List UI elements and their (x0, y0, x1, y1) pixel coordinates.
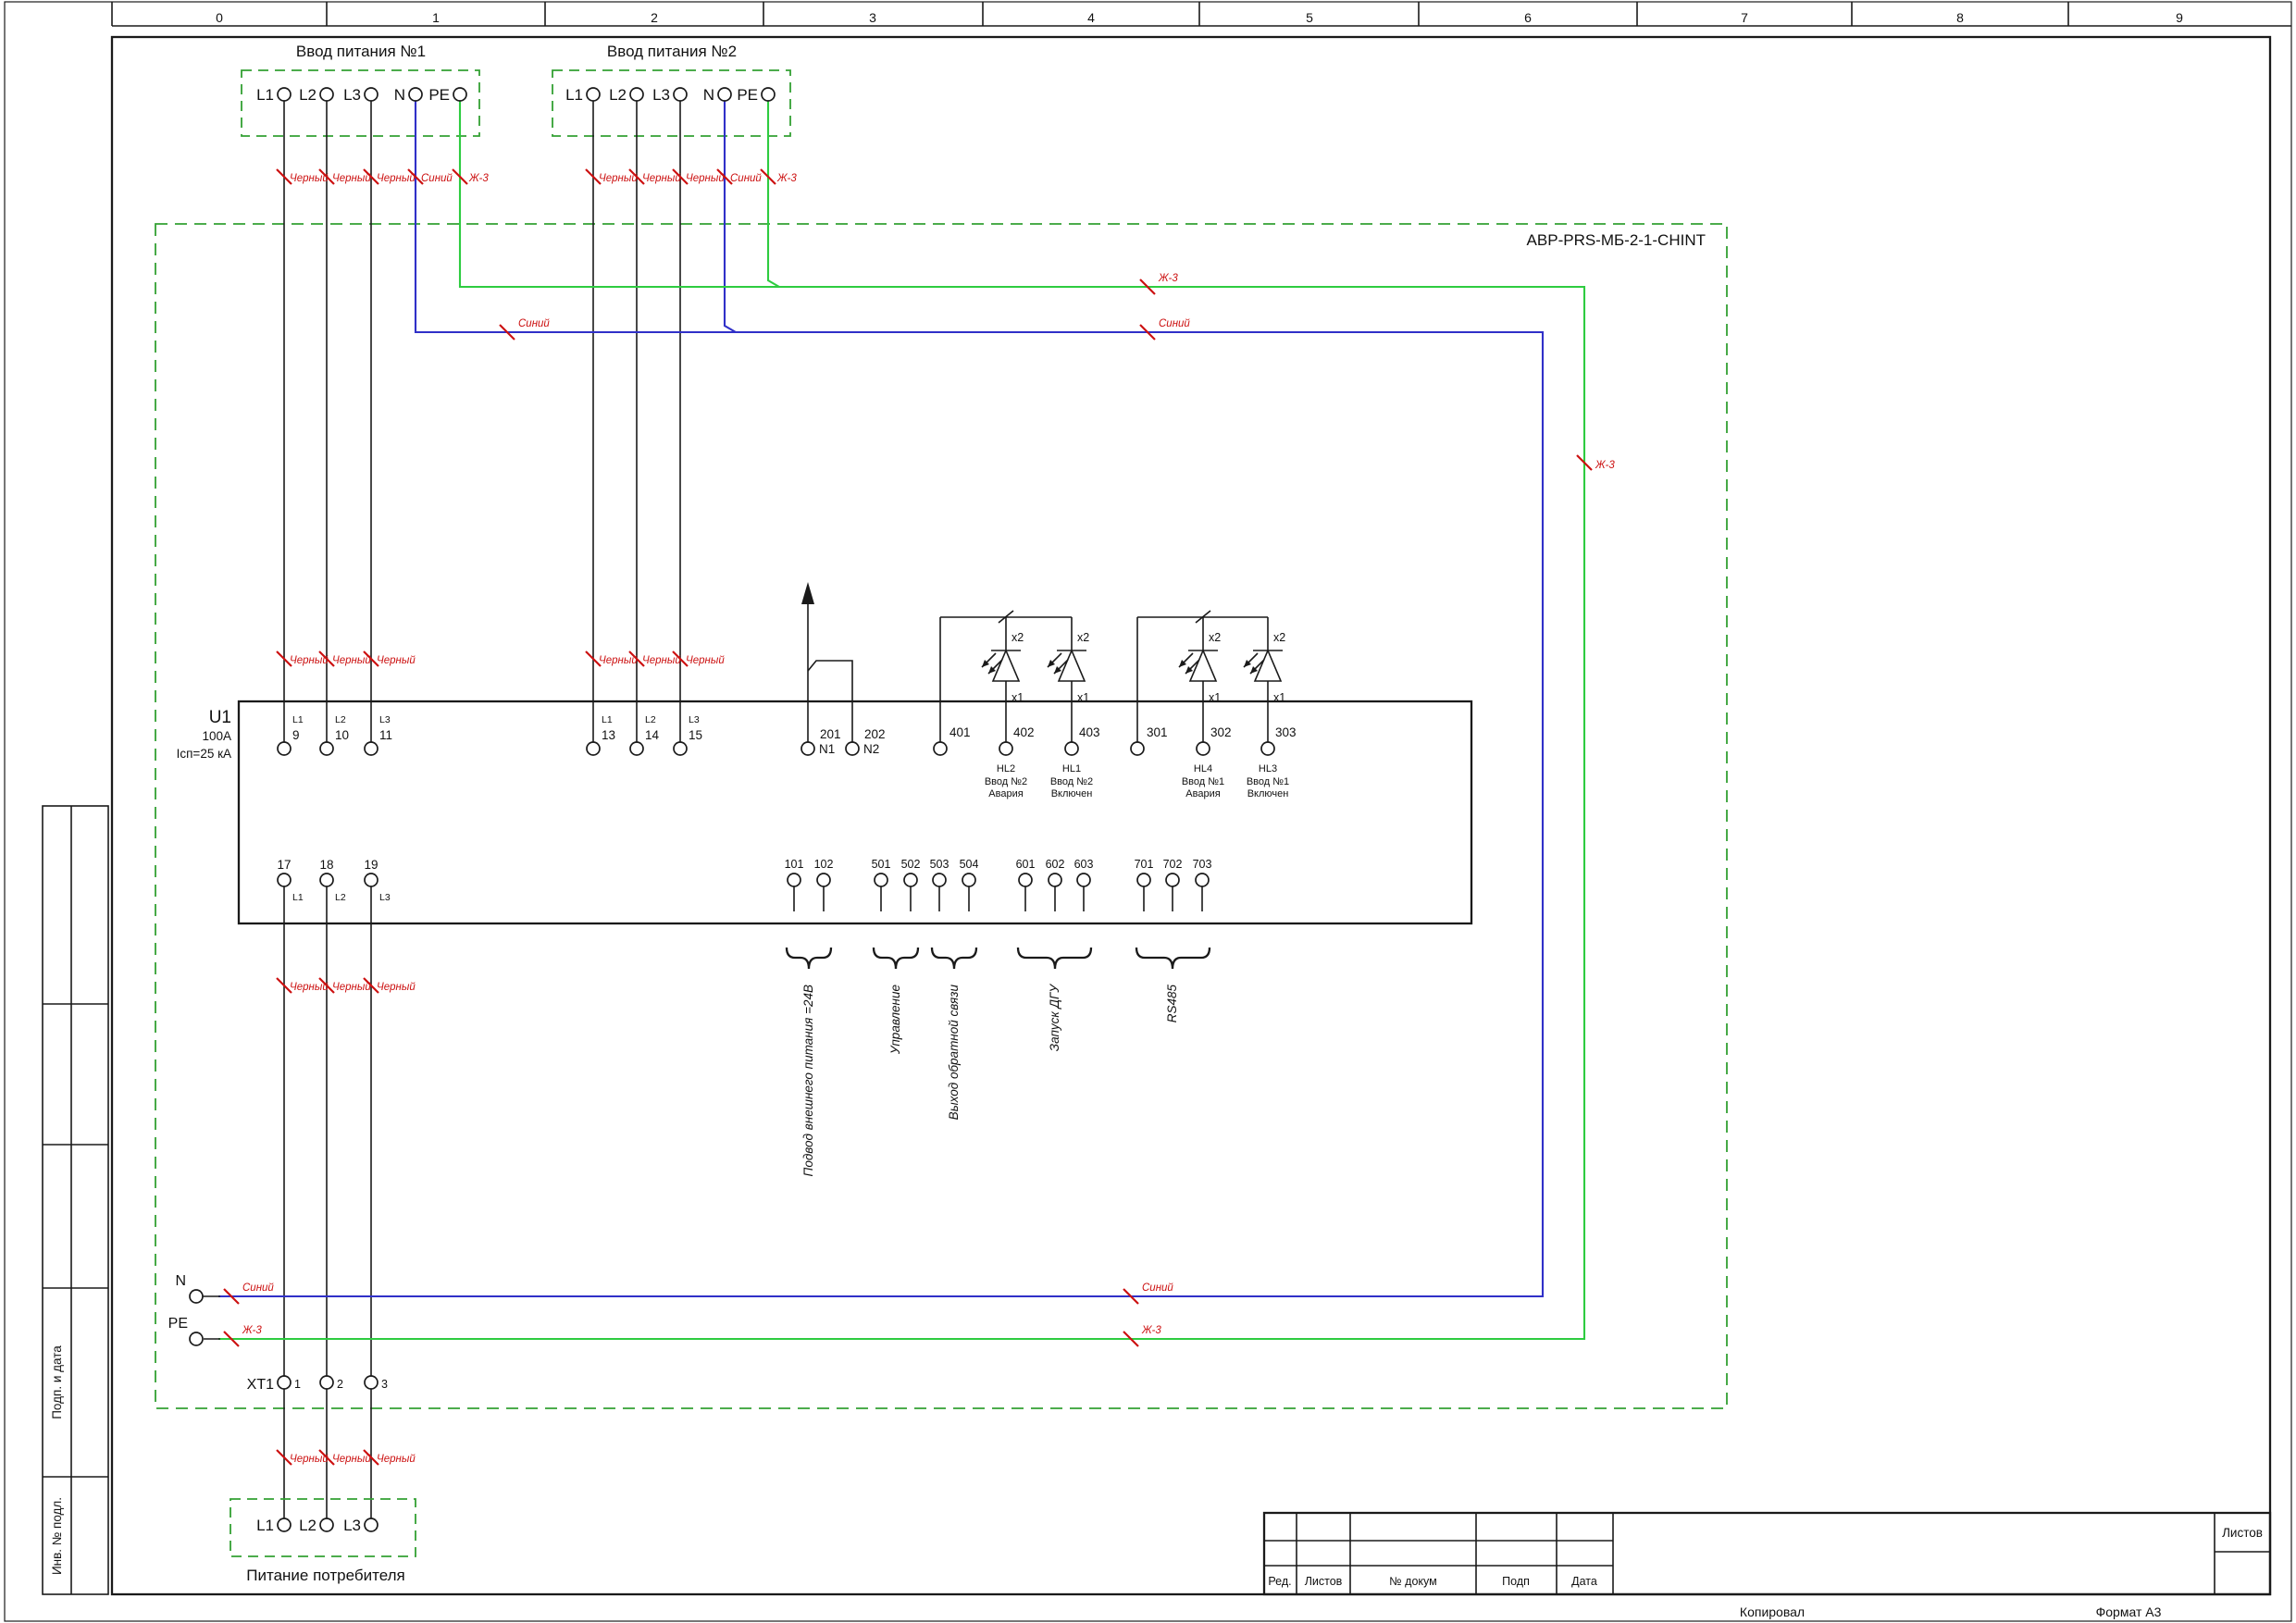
t14-phase: L2 (645, 714, 656, 725)
wire-mark: Черный (290, 173, 329, 184)
ruler-2: 2 (651, 10, 658, 25)
t18-phase: L2 (335, 892, 346, 903)
t303-num: 303 (1275, 725, 1297, 739)
input2-L2-label: L2 (609, 86, 627, 104)
terminal-14 (630, 742, 643, 755)
wire-mark: Черный (377, 173, 416, 184)
hl2-line1: Ввод №2 (985, 776, 1027, 787)
input2-L3-label: L3 (652, 86, 670, 104)
ruler-8: 8 (1956, 10, 1964, 25)
left-stamp-column: Подп. и дата Инв. № подл. (43, 806, 108, 1594)
terminal-consumer-L1 (278, 1518, 291, 1531)
power-input-1: Ввод питания №1 L1 L2 L3 N PE (242, 43, 479, 136)
group-label-rs485: RS485 (1165, 985, 1179, 1023)
terminal-18 (320, 873, 333, 886)
hl3-x1: x1 (1273, 691, 1285, 704)
u1-terminals-input2: L1 13 L2 14 L3 15 (587, 714, 702, 755)
t9-phase: L1 (292, 714, 304, 725)
titleblock-col-docnum: № докум (1389, 1575, 1436, 1588)
terminal-303 (1261, 742, 1274, 755)
hl4-x2: x2 (1209, 631, 1221, 644)
hl2-name: HL2 (997, 763, 1015, 774)
terminal-in2-L1 (587, 88, 600, 101)
wire-mark: Черный (377, 1454, 416, 1465)
u1-output-terminals: 17 18 19 L1 L2 L3 (277, 858, 390, 903)
wire-mark: Черный (642, 173, 681, 184)
schematic-sheet: 0 1 2 3 4 5 6 7 8 9 Подп. и дата Инв. № … (0, 0, 2296, 1623)
wire-mark: Ж-3 (468, 173, 489, 184)
input1-PE-label: PE (428, 86, 450, 104)
terminal-401 (934, 742, 947, 755)
wire-mark: Синий (1142, 1282, 1173, 1294)
neutral-wire (218, 101, 1543, 1296)
terminal-301 (1131, 742, 1144, 755)
t301-num: 301 (1147, 725, 1168, 739)
u1-breaking-capacity: Icп=25 кА (177, 747, 231, 761)
t701-num: 701 (1135, 858, 1154, 871)
t302-num: 302 (1210, 725, 1232, 739)
hl1-line2: Включен (1051, 788, 1093, 799)
terminal-302 (1197, 742, 1210, 755)
titleblock-col-data: Дата (1571, 1575, 1597, 1588)
wire-mark: Черный (290, 1454, 329, 1465)
group-label-aux-power: Подвод внешнего питания =24В (801, 985, 815, 1176)
u1-rating: 100A (202, 729, 231, 743)
hl1-name: HL1 (1062, 763, 1081, 774)
stamp-label-inv-podl: Инв. № подл. (50, 1497, 64, 1575)
t15-phase: L3 (689, 714, 700, 725)
t703-num: 703 (1193, 858, 1212, 871)
terminal-in2-L2 (630, 88, 643, 101)
t202-num: 202 (864, 727, 886, 741)
terminal-17 (278, 873, 291, 886)
wire-mark: Ж-3 (1158, 273, 1178, 284)
t9-num: 9 (292, 728, 300, 742)
terminal-xt1-2 (320, 1376, 333, 1389)
t102-num: 102 (814, 858, 834, 871)
terminal-in2-PE (762, 88, 775, 101)
u1-aux-terminals: 101 102 501 502 503 504 601 602 603 701 … (785, 858, 1212, 911)
terminal-in1-L1 (278, 88, 291, 101)
terminal-in1-PE (453, 88, 466, 101)
consumer-L2-label: L2 (299, 1517, 316, 1534)
pe-wire (218, 101, 1584, 1339)
n-output-label: N (175, 1273, 186, 1289)
terminal-15 (674, 742, 687, 755)
wire-mark: Черный (290, 655, 329, 666)
u1-terminals-input1: L1 9 L2 10 L3 11 (278, 714, 392, 755)
hl1-line1: Ввод №2 (1050, 776, 1093, 787)
brace-dgu (1018, 948, 1091, 969)
title-block: Ред. Листов № докум Подп Дата Листов Коп… (1264, 1513, 2270, 1619)
wire-mark: Черный (599, 173, 638, 184)
t10-phase: L2 (335, 714, 346, 725)
t11-num: 11 (379, 728, 392, 742)
wire-marks-row2: Черный Черный Черный Черный Черный Черны… (277, 651, 725, 666)
terminal-N-out (190, 1290, 203, 1303)
t502-num: 502 (901, 858, 921, 871)
terminal-in1-L3 (365, 88, 378, 101)
terminal-xt1-3 (365, 1376, 378, 1389)
t17-phase: L1 (292, 892, 304, 903)
t15-num: 15 (689, 728, 702, 742)
terminal-201 (801, 742, 814, 755)
column-ruler: 0 1 2 3 4 5 6 7 8 9 (112, 2, 2291, 26)
terminal-503 (933, 873, 946, 886)
sheet-border (5, 2, 2291, 1621)
wire-mark: Черный (332, 655, 371, 666)
t201-name: N1 (819, 742, 835, 756)
pe-output-label: PE (168, 1316, 188, 1332)
t403-num: 403 (1079, 725, 1100, 739)
hl2-x2: x2 (1011, 631, 1024, 644)
wire-mark: Ж-3 (1595, 460, 1615, 471)
hl2-line2: Авария (988, 788, 1023, 799)
terminal-603 (1077, 873, 1090, 886)
npe-output: N PE (168, 1273, 220, 1345)
hl2-x1: x1 (1011, 691, 1024, 704)
u1-ref: U1 (209, 708, 231, 727)
consumer-title: Питание потребителя (246, 1567, 404, 1584)
wire-mark: Черный (642, 655, 681, 666)
hl4-x1: x1 (1209, 691, 1221, 704)
terminal-403 (1065, 742, 1078, 755)
arrow-up-icon (801, 582, 814, 604)
wire-mark: Черный (377, 655, 416, 666)
terminal-202 (846, 742, 859, 755)
hl4-line2: Авария (1185, 788, 1220, 799)
terminal-701 (1137, 873, 1150, 886)
format-label: Формат А3 (2096, 1604, 2162, 1619)
t402-num: 402 (1013, 725, 1035, 739)
input2-L1-label: L1 (565, 86, 583, 104)
xt1-num-1: 1 (294, 1378, 301, 1391)
group-label-dgu-start: Запуск ДГУ (1048, 984, 1061, 1052)
stamp-label-podp-data: Подп. и дата (50, 1345, 64, 1419)
brace-aux (787, 948, 831, 969)
t18-num: 18 (319, 858, 333, 872)
wire-mark: Синий (421, 173, 453, 184)
consumer-L3-label: L3 (343, 1517, 361, 1534)
brace-rs485 (1136, 948, 1210, 969)
wire-mark: Ж-3 (242, 1325, 262, 1336)
ruler-9: 9 (2176, 10, 2183, 25)
brace-ctrl (874, 948, 918, 969)
t101-num: 101 (785, 858, 804, 871)
wire-mark: Синий (518, 318, 550, 329)
t602-num: 602 (1046, 858, 1065, 871)
terminal-consumer-L3 (365, 1518, 378, 1531)
t13-num: 13 (602, 728, 615, 742)
t504-num: 504 (960, 858, 979, 871)
group-label-control: Управление (888, 985, 902, 1055)
wire-mark: Черный (290, 982, 329, 993)
terminal-504 (962, 873, 975, 886)
input2-N-label: N (703, 86, 714, 104)
xt1-num-3: 3 (381, 1378, 388, 1391)
wiring-diagram: 0 1 2 3 4 5 6 7 8 9 Подп. и дата Инв. № … (0, 0, 2296, 1623)
wire-mark: Черный (332, 173, 371, 184)
wire-mark: Черный (686, 655, 725, 666)
wire-mark: Синий (730, 173, 762, 184)
wire-mark: Синий (1159, 318, 1190, 329)
terminal-502 (904, 873, 917, 886)
terminal-PE-out (190, 1332, 203, 1345)
aux-terminal-stubs (794, 886, 1202, 911)
titleblock-sheets-label: Листов (2222, 1526, 2263, 1540)
abp-enclosure: АВР-PRS-МБ-2-1-CHINT (155, 224, 1727, 1408)
input1-N-label: N (394, 86, 405, 104)
hl3-name: HL3 (1259, 763, 1277, 774)
terminal-703 (1196, 873, 1209, 886)
hl1-x1: x1 (1077, 691, 1089, 704)
phase-wires (284, 101, 680, 1518)
terminal-702 (1166, 873, 1179, 886)
input1-L2-label: L2 (299, 86, 316, 104)
hl4-name: HL4 (1194, 763, 1212, 774)
xt1-num-2: 2 (337, 1378, 343, 1391)
group-label-feedback: Выход обратной связи (947, 985, 961, 1121)
consumer-L1-label: L1 (256, 1517, 274, 1534)
titleblock-col-red: Ред. (1268, 1575, 1291, 1588)
wire-mark: Ж-3 (776, 173, 797, 184)
input2-title: Ввод питания №2 (607, 43, 737, 60)
terminal-102 (817, 873, 830, 886)
terminal-9 (278, 742, 291, 755)
terminal-13 (587, 742, 600, 755)
ruler-6: 6 (1524, 10, 1532, 25)
ruler-3: 3 (869, 10, 876, 25)
ruler-0: 0 (216, 10, 223, 25)
hl3-line2: Включен (1247, 788, 1289, 799)
hl4-line1: Ввод №1 (1182, 776, 1224, 787)
t501-num: 501 (872, 858, 891, 871)
wire-marks-row3: Черный Черный Черный (277, 978, 416, 993)
terminal-601 (1019, 873, 1032, 886)
terminal-19 (365, 873, 378, 886)
wire-mark: Синий (242, 1282, 274, 1294)
t19-num: 19 (364, 858, 378, 872)
terminal-consumer-L2 (320, 1518, 333, 1531)
hl1-x2: x2 (1077, 631, 1089, 644)
t19-phase: L3 (379, 892, 391, 903)
input2-PE-label: PE (737, 86, 758, 104)
input1-L1-label: L1 (256, 86, 274, 104)
wire-mark: Черный (332, 1454, 371, 1465)
brace-feedback (932, 948, 976, 969)
terminal-in2-N (718, 88, 731, 101)
t401-num: 401 (949, 725, 971, 739)
xt1-label: XT1 (247, 1377, 274, 1393)
terminal-group-braces: Подвод внешнего питания =24В Управление … (787, 948, 1210, 1176)
t10-num: 10 (335, 728, 349, 742)
terminal-in1-L2 (320, 88, 333, 101)
titleblock-col-listov: Листов (1305, 1575, 1343, 1588)
t702-num: 702 (1163, 858, 1183, 871)
wire-marks-row4: Черный Черный Черный (277, 1450, 416, 1465)
terminal-in2-L3 (674, 88, 687, 101)
terminal-in1-N (409, 88, 422, 101)
consumer-box: L1 L2 L3 Питание потребителя (230, 1499, 416, 1584)
t201-num: 201 (820, 727, 841, 741)
terminal-602 (1049, 873, 1061, 886)
input1-L3-label: L3 (343, 86, 361, 104)
t603-num: 603 (1074, 858, 1094, 871)
wire-mark: Ж-3 (1141, 1325, 1161, 1336)
t503-num: 503 (930, 858, 949, 871)
titleblock-col-podp: Подп (1502, 1575, 1530, 1588)
xt1-terminal-block: XT1 1 2 3 (247, 1376, 388, 1393)
wire-marks-npe: Синий Синий Ж-3 Ж-3 Синий Синий Ж-3 Ж-3 (224, 273, 1615, 1346)
hl3-line1: Ввод №1 (1247, 776, 1289, 787)
t14-num: 14 (645, 728, 660, 742)
t11-phase: L3 (379, 714, 391, 725)
terminal-10 (320, 742, 333, 755)
terminal-101 (788, 873, 800, 886)
t601-num: 601 (1016, 858, 1036, 871)
terminal-11 (365, 742, 378, 755)
wire-mark: Черный (599, 655, 638, 666)
wire-mark: Черный (377, 982, 416, 993)
ruler-1: 1 (432, 10, 440, 25)
ruler-7: 7 (1741, 10, 1748, 25)
led-group-input1: x2 x1 x2 x1 301 302 303 HL4 Ввод №1 Авар… (1131, 611, 1297, 799)
t17-num: 17 (277, 858, 291, 872)
input1-title: Ввод питания №1 (296, 43, 426, 60)
abp-enclosure-label: АВР-PRS-МБ-2-1-CHINT (1527, 231, 1706, 249)
terminal-xt1-1 (278, 1376, 291, 1389)
u1-neutral-terminals: 201 N1 202 N2 (801, 582, 886, 756)
copied-by-label: Копировал (1740, 1604, 1805, 1619)
terminal-402 (999, 742, 1012, 755)
wire-mark: Черный (686, 173, 725, 184)
terminal-501 (875, 873, 887, 886)
t13-phase: L1 (602, 714, 613, 725)
ruler-5: 5 (1306, 10, 1313, 25)
wire-marks-row1: Черный Черный Черный Синий Ж-3 Черный Че… (277, 169, 797, 184)
led-group-input2: x2 x1 x2 x1 401 402 403 HL2 Ввод №2 Авар… (934, 611, 1100, 799)
ruler-4: 4 (1087, 10, 1095, 25)
t202-name: N2 (863, 742, 879, 756)
wire-mark: Черный (332, 982, 371, 993)
hl3-x2: x2 (1273, 631, 1285, 644)
